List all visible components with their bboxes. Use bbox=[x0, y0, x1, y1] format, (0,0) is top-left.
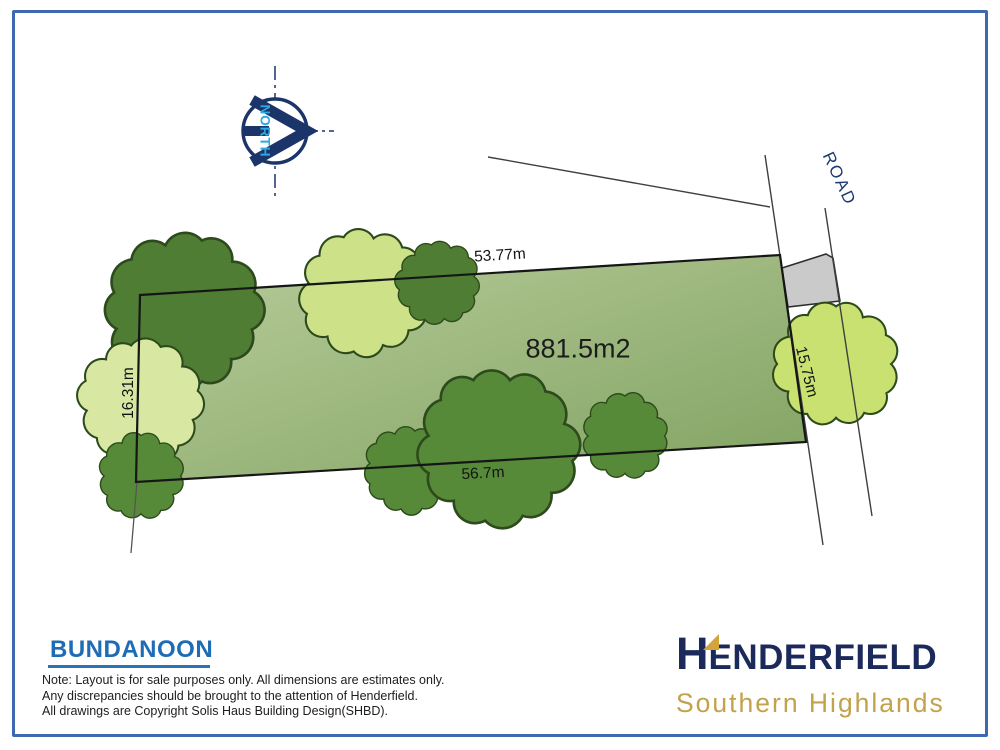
dimension-bottom: 56.7m bbox=[461, 464, 505, 484]
note-line: Note: Layout is for sale purposes only. … bbox=[42, 673, 445, 689]
suburb-title: BUNDANOON bbox=[50, 636, 213, 664]
brand-name: HENDERFIELD bbox=[676, 632, 976, 687]
dimension-top: 53.77m bbox=[474, 245, 527, 266]
north-label: NORTH bbox=[258, 105, 273, 158]
site-plan-graphic bbox=[0, 0, 1000, 620]
disclaimer-notes: Note: Layout is for sale purposes only. … bbox=[42, 673, 445, 720]
henderfield-logo: HENDERFIELD Southern Highlands bbox=[676, 632, 976, 719]
brand-gold-triangle-icon bbox=[703, 634, 719, 650]
brand-tagline: Southern Highlands bbox=[676, 688, 976, 719]
suburb-underline bbox=[48, 665, 210, 668]
note-line: All drawings are Copyright Solis Haus Bu… bbox=[42, 704, 445, 720]
note-line: Any discrepancies should be brought to t… bbox=[42, 689, 445, 705]
driveway-crossover bbox=[782, 254, 840, 307]
brand-name-rest: ENDERFIELD bbox=[709, 638, 938, 677]
neighbour-boundary-line bbox=[488, 157, 770, 207]
lot-area-label: 881.5m2 bbox=[525, 334, 630, 365]
dimension-left: 16.31m bbox=[120, 367, 138, 419]
